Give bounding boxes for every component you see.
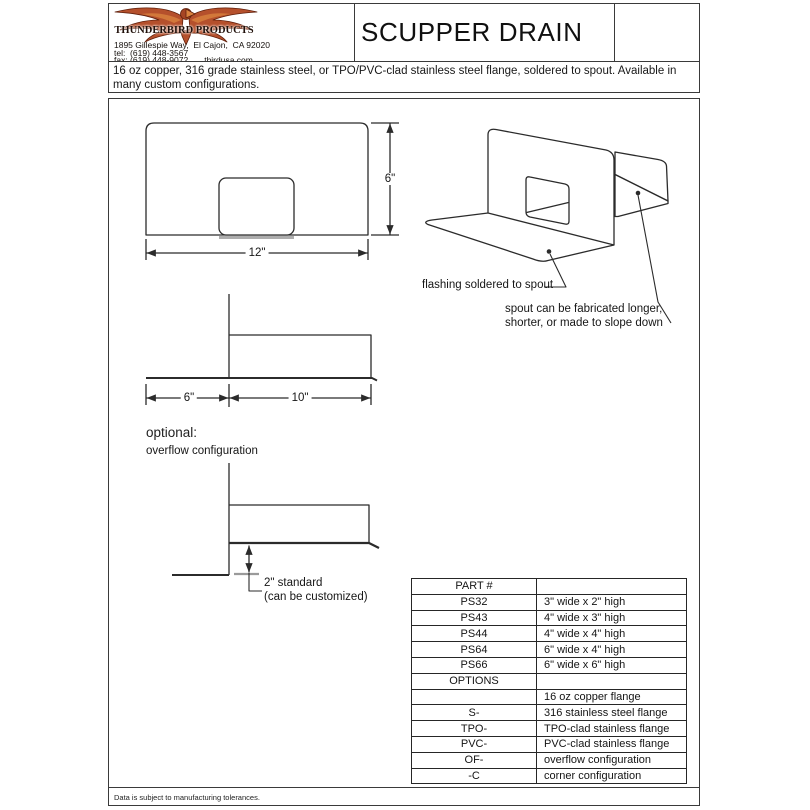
company-fax-row: fax: (619) 448-9072 tbirdusa.com [114, 56, 253, 62]
part-description-cell: 6" wide x 6" high [537, 657, 687, 673]
front-width-dimension: 12" [246, 247, 269, 259]
part-number-cell: -C [412, 768, 537, 784]
part-number-cell: OPTIONS [412, 673, 537, 689]
spec-sheet-page: THUNDERBIRD PRODUCTS 1895 Gillespie Way,… [0, 0, 810, 810]
perspective-drawing [426, 129, 671, 323]
part-number-cell: S- [412, 705, 537, 721]
part-number-cell: PS66 [412, 657, 537, 673]
spout-note: spout can be fabricated longer, shorter,… [505, 303, 663, 330]
spout-note-line1: spout can be fabricated longer, [505, 303, 663, 317]
part-description-cell: TPO-clad stainless flange [537, 721, 687, 737]
title-box: SCUPPER DRAIN [355, 3, 615, 62]
part-number-cell: PS43 [412, 610, 537, 626]
side-flange-dimension: 6" [181, 392, 197, 404]
front-height-dimension: 6" [382, 173, 398, 185]
optional-heading: optional: [146, 426, 197, 440]
overflow-drawing [172, 463, 379, 591]
overflow-dim-note: 2" standard (can be customized) [264, 576, 368, 604]
table-row: -Ccorner configuration [412, 768, 687, 784]
drawing-area: 6" 12" 6" 10" flashing soldered to spout… [108, 98, 700, 788]
part-description-cell: overflow configuration [537, 752, 687, 768]
part-number-cell: PS32 [412, 594, 537, 610]
table-row: PS323" wide x 2" high [412, 594, 687, 610]
part-description-cell: 16 oz copper flange [537, 689, 687, 705]
company-name: THUNDERBIRD PRODUCTS [109, 25, 259, 36]
page-title: SCUPPER DRAIN [361, 17, 583, 48]
part-number-cell: PART # [412, 579, 537, 595]
company-logo-block: THUNDERBIRD PRODUCTS 1895 Gillespie Way,… [108, 3, 355, 62]
table-row: OPTIONS [412, 673, 687, 689]
footer-note: Data is subject to manufacturing toleran… [108, 787, 700, 806]
table-row: PS646" wide x 4" high [412, 642, 687, 658]
table-row: PVC-PVC-clad stainless flange [412, 736, 687, 752]
flashing-note: flashing soldered to spout [422, 279, 553, 293]
parts-table-body: PART #PS323" wide x 2" highPS434" wide x… [412, 579, 687, 784]
table-row: OF-overflow configuration [412, 752, 687, 768]
overflow-dim-line1: 2" standard [264, 576, 368, 590]
part-number-cell: PS44 [412, 626, 537, 642]
table-row: PS444" wide x 4" high [412, 626, 687, 642]
table-row: PS666" wide x 6" high [412, 657, 687, 673]
part-number-cell: PVC- [412, 736, 537, 752]
part-number-cell: TPO- [412, 721, 537, 737]
part-description-cell [537, 673, 687, 689]
part-description-cell: 3" wide x 2" high [537, 594, 687, 610]
front-view-drawing [146, 123, 399, 260]
part-description-cell: PVC-clad stainless flange [537, 736, 687, 752]
overflow-subheading: overflow configuration [146, 445, 258, 459]
part-number-cell: PS64 [412, 642, 537, 658]
part-description-cell: corner configuration [537, 768, 687, 784]
part-description-cell: 4" wide x 3" high [537, 610, 687, 626]
part-number-cell [412, 689, 537, 705]
overflow-dim-line2: (can be customized) [264, 590, 368, 604]
company-website: tbirdusa.com [204, 56, 253, 62]
document-frame: THUNDERBIRD PRODUCTS 1895 Gillespie Way,… [108, 3, 700, 806]
part-description-cell: 316 stainless steel flange [537, 705, 687, 721]
table-row: PS434" wide x 3" high [412, 610, 687, 626]
spout-note-line2: shorter, or made to slope down [505, 317, 663, 331]
company-fax: fax: (619) 448-9072 [114, 56, 188, 62]
table-row: TPO-TPO-clad stainless flange [412, 721, 687, 737]
product-description: 16 oz copper, 316 grade stainless steel,… [108, 61, 700, 93]
table-row: PART # [412, 579, 687, 595]
part-description-cell: 4" wide x 4" high [537, 626, 687, 642]
part-description-cell [537, 579, 687, 595]
part-number-cell: OF- [412, 752, 537, 768]
header-corner-box [615, 3, 700, 62]
part-description-cell: 6" wide x 4" high [537, 642, 687, 658]
side-spout-dimension: 10" [289, 392, 312, 404]
table-row: 16 oz copper flange [412, 689, 687, 705]
parts-table: PART #PS323" wide x 2" highPS434" wide x… [411, 578, 687, 784]
side-view-drawing [146, 294, 377, 407]
header: THUNDERBIRD PRODUCTS 1895 Gillespie Way,… [108, 3, 700, 62]
table-row: S-316 stainless steel flange [412, 705, 687, 721]
